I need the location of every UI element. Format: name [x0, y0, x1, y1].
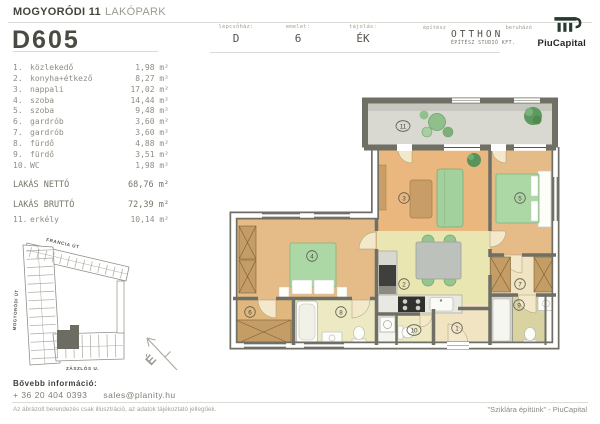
room-name: nappali: [30, 85, 130, 96]
balcony-num: 11.: [13, 215, 30, 224]
disclaimer: Az ábrázolt berendezés csak illusztráció…: [13, 406, 216, 413]
staircase-value: D: [206, 32, 266, 45]
room-num: 7.: [13, 128, 30, 139]
room-label-8: 8: [339, 309, 343, 316]
meta-underline: [210, 52, 500, 53]
bedroom5-furniture: [496, 171, 551, 227]
slogan: "Sziklára építünk" - PiuCapital: [487, 405, 587, 414]
balcony-area: 10,14 m²: [130, 215, 169, 224]
architect-label: építész: [398, 25, 446, 31]
room-label-3: 3: [402, 195, 406, 202]
street-left: MOGYORÓDI ÚT: [12, 289, 19, 330]
room-area: 3,60 m²: [135, 117, 169, 128]
room-area: 14,44 m²: [130, 96, 169, 107]
floor-value: 6: [268, 32, 328, 45]
developer-name: PiuCapital: [532, 38, 586, 49]
balcony-name: erkély: [30, 215, 130, 224]
room-num: 1.: [13, 63, 30, 74]
room-list: 1.közlekedő1,98 m² 2.konyha+étkező8,27 m…: [13, 63, 169, 171]
net-value: 68,76 m²: [128, 179, 169, 199]
room-name: szoba: [30, 96, 130, 107]
north-label: É: [142, 351, 159, 368]
room-row: 5.szoba9,48 m²: [13, 106, 169, 117]
room-row: 7.gardrób3,60 m²: [13, 128, 169, 139]
room-label-10: 10: [410, 327, 418, 334]
highlighted-unit: [57, 325, 79, 349]
street-bottom: ZÁSZLÓS U.: [66, 364, 99, 371]
room-area: 9,48 m²: [135, 106, 169, 117]
header-divider: [8, 22, 592, 23]
datasheet-page: MOGYORÓDI 11LAKÓPARK D605 lépcsőház: D e…: [0, 0, 600, 424]
contact-line: + 36 20 404 0393sales@planity.hu: [13, 390, 176, 400]
project-title: MOGYORÓDI 11LAKÓPARK: [13, 6, 166, 18]
unit-id-underline: [13, 51, 158, 52]
washing-machine: [380, 317, 395, 332]
room-row: 10.WC1,98 m²: [13, 161, 169, 172]
room-row: 4.szoba14,44 m²: [13, 96, 169, 107]
room-label-7: 7: [518, 281, 522, 288]
staircase-label: lépcsőház:: [206, 24, 266, 30]
room-label-11: 11: [400, 123, 407, 130]
room-num: 8.: [13, 139, 30, 150]
room-area: 3,51 m²: [135, 150, 169, 161]
room-num: 5.: [13, 106, 30, 117]
balcony-row: 11.erkély10,14 m²: [13, 215, 169, 224]
room-name: gardrób: [30, 117, 135, 128]
email-address: sales@planity.hu: [103, 390, 175, 400]
dining-furniture: [416, 235, 461, 286]
room-num: 4.: [13, 96, 30, 107]
room-name: közlekedő: [30, 63, 135, 74]
room-row: 8.fürdő4,88 m²: [13, 139, 169, 150]
project-title-light: LAKÓPARK: [105, 6, 166, 18]
room-name: gardrób: [30, 128, 135, 139]
room-label-1: 1: [455, 325, 459, 332]
room-name: fürdő: [30, 150, 135, 161]
orientation-value: ÉK: [333, 32, 393, 45]
room-area: 8,27 m²: [135, 74, 169, 85]
room-label-5: 5: [518, 195, 522, 202]
floor-plan: 1 2 3 4 5 6 7 8 9 10 11: [220, 84, 600, 384]
room-row: 6.gardrób3,60 m²: [13, 117, 169, 128]
info-label: Bővebb információ:: [13, 379, 97, 388]
total-row-net: LAKÁS NETTÓ68,76 m²: [13, 179, 169, 199]
site-map: FRANCIA ÚT MOGYORÓDI ÚT ZÁSZLÓS U. É: [5, 230, 210, 382]
meta-staircase: lépcsőház: D: [206, 24, 266, 45]
architect-subtitle: ÉPÍTÉSZ STUDIÓ KFT.: [451, 41, 515, 46]
room-label-2: 2: [402, 281, 406, 288]
footer-divider: [12, 402, 588, 403]
room-label-6: 6: [248, 309, 252, 316]
room-label-4: 4: [310, 253, 314, 260]
room-row: 2.konyha+étkező8,27 m²: [13, 74, 169, 85]
room-num: 3.: [13, 85, 30, 96]
room-row: 3.nappali17,02 m²: [13, 85, 169, 96]
room-area: 4,88 m²: [135, 139, 169, 150]
piucapital-logo-icon: [551, 15, 583, 36]
project-title-bold: MOGYORÓDI 11: [13, 6, 101, 18]
room-label-9: 9: [517, 302, 521, 309]
net-label: LAKÁS NETTÓ: [13, 179, 128, 199]
meta-floor: emelet: 6: [268, 24, 328, 45]
room-num: 10.: [13, 161, 30, 172]
meta-orientation: tájolás: ÉK: [333, 24, 393, 45]
room-area: 1,98 m²: [135, 63, 169, 74]
room-num: 2.: [13, 74, 30, 85]
floor-label: emelet:: [268, 24, 328, 30]
room-row: 1.közlekedő1,98 m²: [13, 63, 169, 74]
room-name: fürdő: [30, 139, 135, 150]
room-row: 9.fürdő3,51 m²: [13, 150, 169, 161]
orientation-label: tájolás:: [333, 24, 393, 30]
room-num: 6.: [13, 117, 30, 128]
room-name: konyha+étkező: [30, 74, 135, 85]
room-area: 1,98 m²: [135, 161, 169, 172]
room-num: 9.: [13, 150, 30, 161]
area-totals: LAKÁS NETTÓ68,76 m² LAKÁS BRUTTÓ72,39 m²: [13, 179, 169, 218]
developer-label: beruházó: [494, 25, 532, 31]
room-area: 3,60 m²: [135, 128, 169, 139]
room-name: szoba: [30, 106, 135, 117]
room-name: WC: [30, 161, 135, 172]
phone-number: + 36 20 404 0393: [13, 390, 87, 400]
room-area: 17,02 m²: [130, 85, 169, 96]
